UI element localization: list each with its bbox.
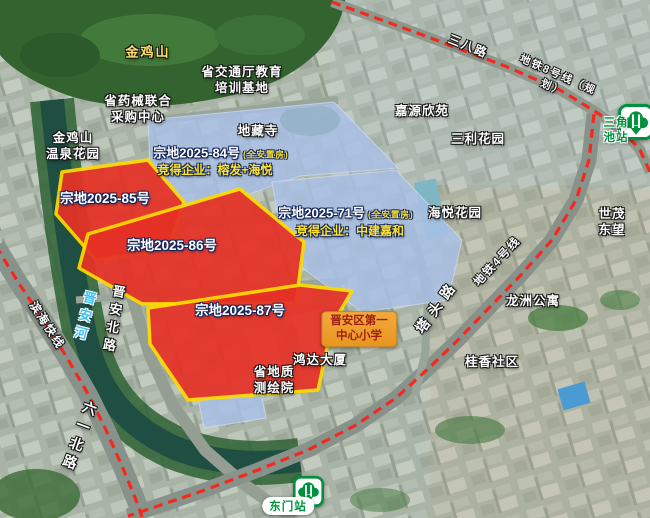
label-hongda-tower: 鸿达大厦: [293, 352, 347, 368]
parcel-84-bid-winner: 竞得企业：榕发+海悦: [157, 163, 272, 179]
street-trees: [435, 416, 505, 444]
parcel-71-title: 宗地2025-71号: [278, 206, 365, 223]
label-haiyue-garden: 海悦花园: [428, 205, 482, 221]
east-city-tint: [430, 190, 650, 518]
label-shimao-dongwang: 世茂东望: [593, 206, 631, 239]
forest-shadow: [20, 33, 100, 77]
parcel-87-label: 宗地2025-87号: [195, 302, 285, 320]
parcel-71-label: 宗地2025-71号 (全安置房): [278, 206, 413, 223]
parcel-84-title: 宗地2025-84号: [153, 146, 240, 163]
primary-school-badge: 晋安区第一 中心小学: [321, 311, 397, 347]
annotated-aerial-map: 金鸡山 省药械联合 采购中心 金鸡山 温泉花园 省交通厅教育 培训基地 地藏寺 …: [0, 0, 650, 518]
parcel-71-tag: (全安置房): [368, 210, 414, 221]
parcel-84-label: 宗地2025-84号 (全安置房): [153, 146, 288, 163]
label-jinji-mountain: 金鸡山: [125, 45, 170, 62]
parcel-85-label: 宗地2025-85号: [60, 190, 150, 208]
label-geology-institute: 省地质 测绘院: [254, 364, 295, 397]
station-label-sanjiaochi: 三角池站: [599, 116, 633, 146]
parcel-71-bid-winner: 竞得企业：中建嘉和: [296, 224, 404, 240]
label-longzhou-apartment: 龙洲公寓: [506, 293, 560, 309]
parcel-86-label: 宗地2025-86号: [127, 237, 217, 255]
street-trees: [350, 488, 410, 512]
label-transport-training-base: 省交通厅教育 培训基地: [201, 64, 282, 97]
parcel-84-tag: (全安置房): [243, 150, 289, 161]
label-sanli-garden: 三利花园: [451, 131, 505, 147]
station-label-dongmen: 东门站: [262, 497, 314, 515]
label-guixiang-community: 桂香社区: [465, 354, 519, 370]
label-hotspring-garden: 金鸡山 温泉花园: [46, 130, 100, 163]
park-trees: [600, 290, 640, 310]
label-pharma-center: 省药械联合 采购中心: [104, 93, 172, 126]
label-jiayuan-xinyuan: 嘉源欣苑: [395, 103, 449, 119]
forest-highlight: [215, 15, 305, 55]
label-dizang-temple: 地藏寺: [238, 123, 279, 139]
